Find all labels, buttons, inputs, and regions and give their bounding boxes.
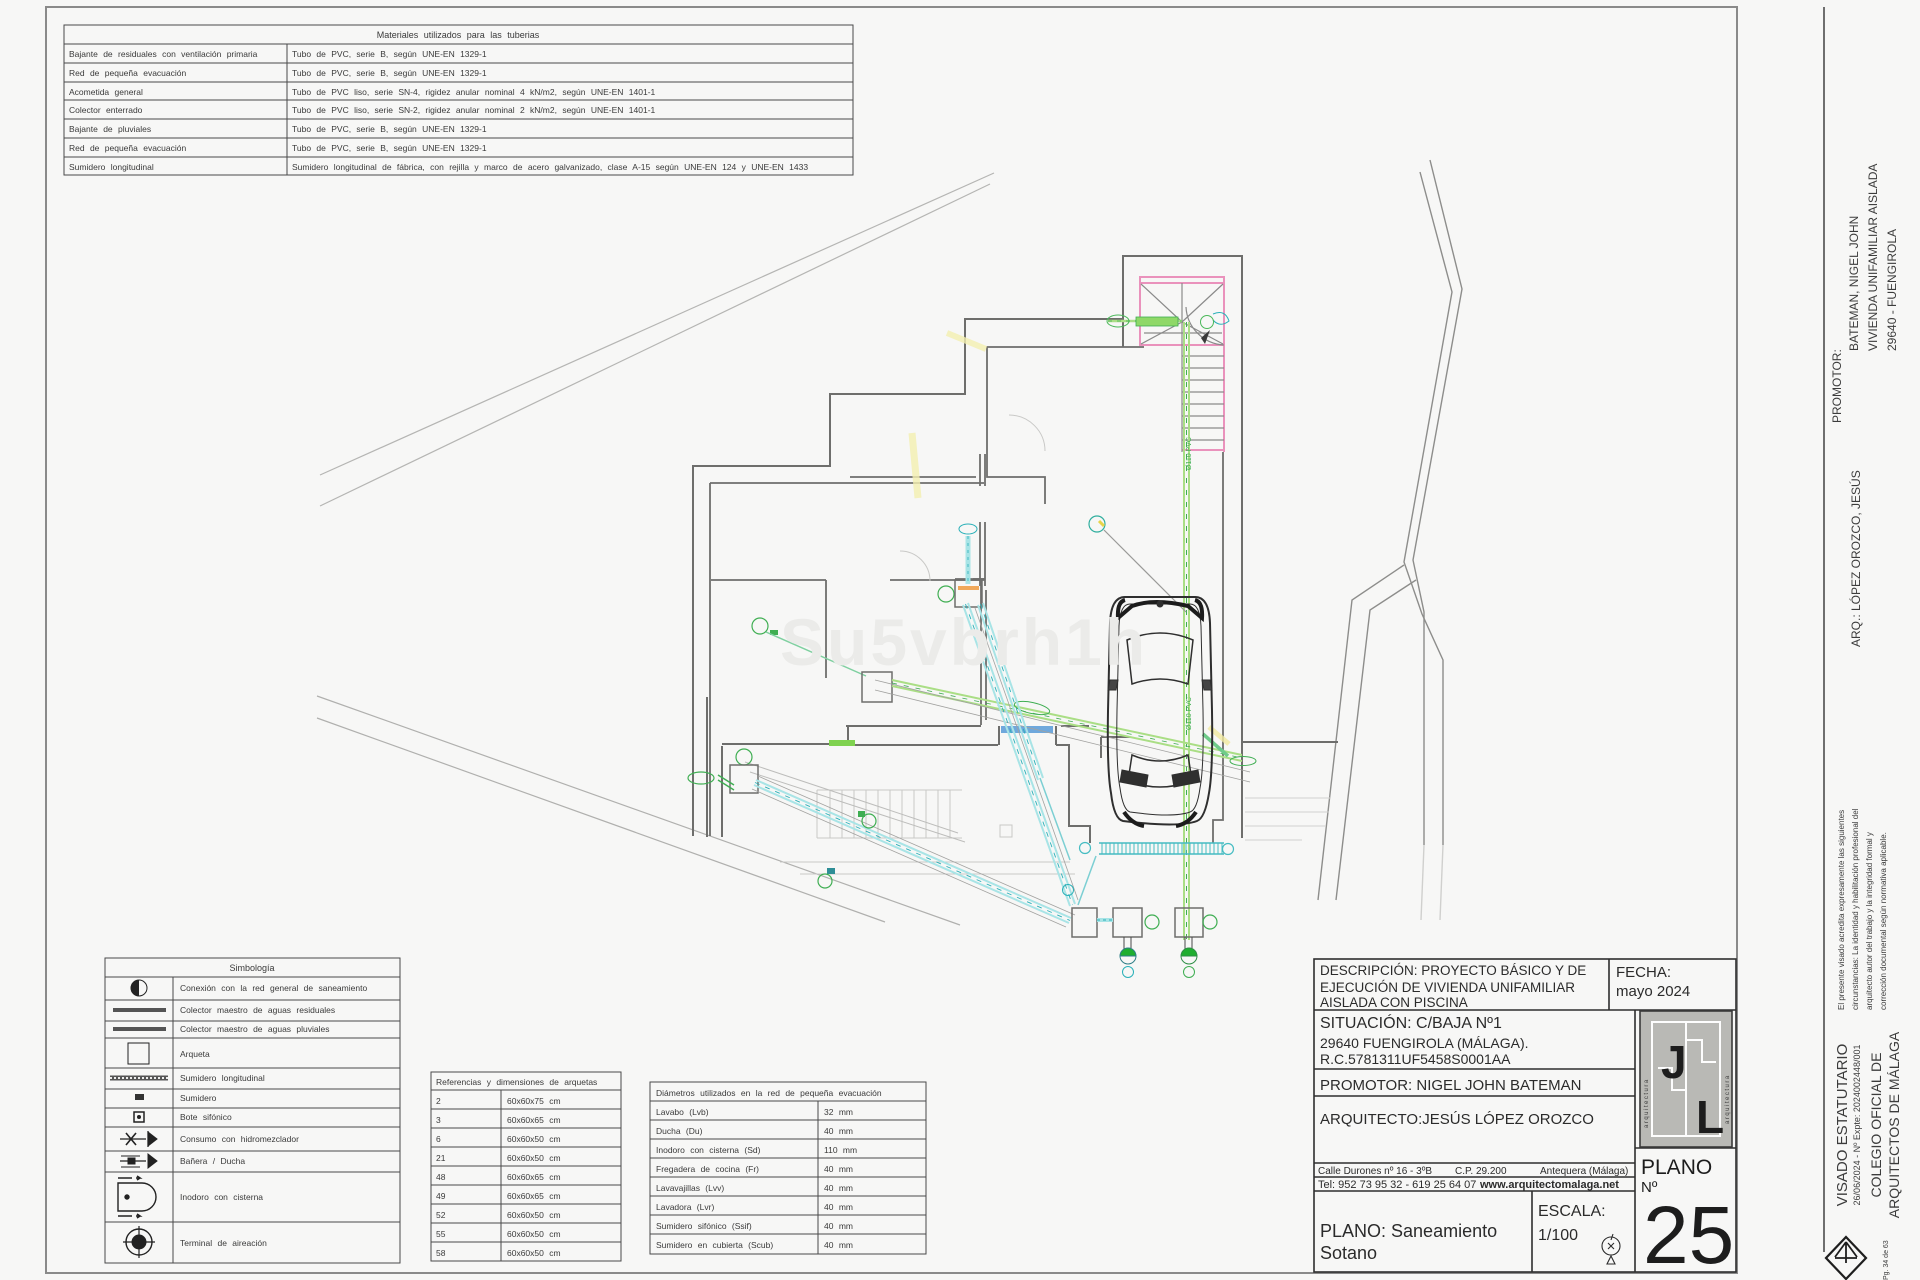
- svg-text:R.C.5781311UF5458S0001AA: R.C.5781311UF5458S0001AA: [1320, 1051, 1511, 1067]
- svg-text:Colector maestro de aguas pluv: Colector maestro de aguas pluviales: [180, 1024, 330, 1034]
- svg-text:40 mm: 40 mm: [824, 1240, 853, 1250]
- svg-text:Diámetros utilizados en la red: Diámetros utilizados en la red de pequeñ…: [656, 1088, 882, 1098]
- svg-text:PROMOTOR:: PROMOTOR:: [1830, 349, 1844, 423]
- svg-text:El presente visado acredita ex: El presente visado acredita expresamente…: [1837, 810, 1846, 1010]
- svg-text:Ø110 PVC: Ø110 PVC: [1186, 697, 1193, 730]
- svg-text:55: 55: [436, 1229, 446, 1239]
- svg-text:Sotano: Sotano: [1320, 1243, 1377, 1263]
- svg-text:ESCALA:: ESCALA:: [1538, 1203, 1606, 1220]
- svg-text:Sumidero longitudinal: Sumidero longitudinal: [69, 162, 154, 172]
- svg-text:VIVIENDA UNIFAMILIAR AISLADA: VIVIENDA UNIFAMILIAR AISLADA: [1866, 164, 1880, 351]
- svg-text:Su5vbrh1h: Su5vbrh1h: [780, 605, 1148, 679]
- svg-text:Tubo de PVC, serie B, según UN: Tubo de PVC, serie B, según UNE-EN 1329-…: [292, 68, 487, 78]
- svg-text:Tubo de PVC, serie B, según UN: Tubo de PVC, serie B, según UNE-EN 1329-…: [292, 49, 487, 59]
- svg-text:Inodoro con cisterna: Inodoro con cisterna: [180, 1192, 263, 1202]
- svg-text:58: 58: [436, 1248, 446, 1258]
- svg-text:Bote sifónico: Bote sifónico: [180, 1112, 232, 1122]
- svg-text:circunstancias: La identidad y: circunstancias: La identidad y habilitac…: [1851, 808, 1860, 1010]
- svg-text:FECHA:: FECHA:: [1616, 964, 1671, 981]
- svg-text:Lavadora (Lvr): Lavadora (Lvr): [656, 1202, 714, 1212]
- svg-text:www.arquitectomalaga.net: www.arquitectomalaga.net: [1479, 1179, 1619, 1191]
- svg-text:110 mm: 110 mm: [824, 1145, 857, 1155]
- svg-text:60x60x50 cm: 60x60x50 cm: [507, 1210, 561, 1220]
- svg-text:40 mm: 40 mm: [824, 1221, 853, 1231]
- svg-text:arquitecto autor del trabajo y: arquitecto autor del trabajo y la integr…: [1865, 832, 1874, 1010]
- svg-text:Lavavajillas (Lvv): Lavavajillas (Lvv): [656, 1183, 724, 1193]
- svg-text:60x60x65 cm: 60x60x65 cm: [507, 1172, 561, 1182]
- svg-text:Acometida general: Acometida general: [69, 87, 143, 97]
- svg-text:60x60x65 cm: 60x60x65 cm: [507, 1191, 561, 1201]
- svg-text:Ducha (Du): Ducha (Du): [656, 1126, 703, 1136]
- svg-text:J: J: [1661, 1036, 1687, 1088]
- svg-text:Fregadera de cocina (Fr): Fregadera de cocina (Fr): [656, 1164, 759, 1174]
- svg-text:2: 2: [436, 1096, 441, 1106]
- svg-text:Tubo de PVC liso, serie SN-2,: Tubo de PVC liso, serie SN-2, rigidez an…: [292, 105, 656, 115]
- svg-text:6: 6: [436, 1134, 441, 1144]
- svg-text:Colector maestro de aguas resi: Colector maestro de aguas residuales: [180, 1005, 335, 1015]
- svg-text:Sumidero sifónico (Ssif): Sumidero sifónico (Ssif): [656, 1221, 752, 1231]
- svg-text:60x60x50 cm: 60x60x50 cm: [507, 1153, 561, 1163]
- svg-text:60x60x65 cm: 60x60x65 cm: [507, 1115, 561, 1125]
- svg-text:Lavabo (Lvb): Lavabo (Lvb): [656, 1107, 709, 1117]
- svg-text:60x60x50 cm: 60x60x50 cm: [507, 1248, 561, 1258]
- svg-text:Simbología: Simbología: [229, 963, 274, 973]
- svg-text:Tubo de PVC liso, serie SN-4,: Tubo de PVC liso, serie SN-4, rigidez an…: [292, 87, 656, 97]
- svg-text:ARQ.: LÓPEZ OROZCO, JESÚS: ARQ.: LÓPEZ OROZCO, JESÚS: [1848, 470, 1863, 647]
- svg-text:Materiales utilizados para las: Materiales utilizados para las tuberias: [377, 30, 540, 40]
- svg-text:Sumidero longitudinal: Sumidero longitudinal: [180, 1073, 265, 1083]
- svg-text:Tel: 952 73 95 32 - 619 25 64: Tel: 952 73 95 32 - 619 25 64 07: [1318, 1179, 1476, 1191]
- svg-text:mayo 2024: mayo 2024: [1616, 983, 1690, 1000]
- svg-text:Sumidero longitudinal de fábri: Sumidero longitudinal de fábrica, con re…: [292, 162, 808, 172]
- svg-text:Tubo de PVC, serie B, según UN: Tubo de PVC, serie B, según UNE-EN 1329-…: [292, 124, 487, 134]
- svg-text:Pg. 34 de 63: Pg. 34 de 63: [1883, 1240, 1890, 1280]
- svg-text:29640 FUENGIROLA (MÁLAGA).: 29640 FUENGIROLA (MÁLAGA).: [1320, 1035, 1529, 1051]
- svg-text:Bañera / Ducha: Bañera / Ducha: [180, 1156, 245, 1166]
- svg-text:3: 3: [436, 1115, 441, 1125]
- svg-text:Ø110 PVC: Ø110 PVC: [1186, 437, 1193, 470]
- svg-text:ARQUITECTO:JESÚS LÓPEZ OROZCO: ARQUITECTO:JESÚS LÓPEZ OROZCO: [1320, 1111, 1594, 1128]
- svg-text:PLANO: Saneamiento: PLANO: Saneamiento: [1320, 1221, 1497, 1241]
- svg-text:40 mm: 40 mm: [824, 1183, 853, 1193]
- svg-text:49: 49: [436, 1191, 446, 1201]
- svg-text:60x60x50 cm: 60x60x50 cm: [507, 1229, 561, 1239]
- svg-text:Bajante de pluviales: Bajante de pluviales: [69, 124, 151, 134]
- svg-text:COLEGIO OFICIAL DE: COLEGIO OFICIAL DE: [1868, 1053, 1884, 1198]
- svg-text:40 mm: 40 mm: [824, 1202, 853, 1212]
- svg-text:Red de pequeña evacuación: Red de pequeña evacuación: [69, 68, 186, 78]
- svg-text:DESCRIPCIÓN: PROYECTO BÁSICO Y: DESCRIPCIÓN: PROYECTO BÁSICO Y DE: [1320, 963, 1586, 978]
- svg-text:Tubo de PVC, serie B, según UN: Tubo de PVC, serie B, según UNE-EN 1329-…: [292, 143, 487, 153]
- svg-text:48: 48: [436, 1172, 446, 1182]
- svg-text:AISLADA CON PISCINA: AISLADA CON PISCINA: [1320, 995, 1468, 1010]
- svg-text:Antequera (Málaga): Antequera (Málaga): [1540, 1166, 1628, 1177]
- svg-text:Sumidero: Sumidero: [180, 1093, 217, 1103]
- svg-text:VISADO ESTATUTARIO: VISADO ESTATUTARIO: [1834, 1044, 1851, 1207]
- svg-text:40 mm: 40 mm: [824, 1164, 853, 1174]
- svg-text:C.P. 29.200: C.P. 29.200: [1455, 1166, 1507, 1177]
- svg-text:PLANO: PLANO: [1641, 1156, 1712, 1179]
- svg-text:Consumo con hidromezclador: Consumo con hidromezclador: [180, 1134, 299, 1144]
- svg-text:25: 25: [1643, 1190, 1734, 1280]
- svg-text:1/100: 1/100: [1538, 1227, 1578, 1244]
- svg-text:Conexión con la red general de: Conexión con la red general de saneamien…: [180, 983, 367, 993]
- svg-text:32 mm: 32 mm: [824, 1107, 853, 1117]
- svg-text:Bajante de residuales con vent: Bajante de residuales con ventilación pr…: [69, 49, 258, 59]
- svg-text:L: L: [1696, 1091, 1724, 1143]
- svg-text:21: 21: [436, 1153, 446, 1163]
- svg-text:52: 52: [436, 1210, 446, 1220]
- svg-text:60x60x75 cm: 60x60x75 cm: [507, 1096, 561, 1106]
- svg-text:PROMOTOR: NIGEL JOHN BATEMAN: PROMOTOR: NIGEL JOHN BATEMAN: [1320, 1077, 1581, 1094]
- svg-text:Arqueta: Arqueta: [180, 1049, 210, 1059]
- svg-text:Terminal de aireación: Terminal de aireación: [180, 1238, 267, 1248]
- svg-text:ARQUITECTOS DE MÁLAGA: ARQUITECTOS DE MÁLAGA: [1886, 1031, 1902, 1218]
- svg-text:Colector enterrado: Colector enterrado: [69, 105, 143, 115]
- svg-text:Sumidero en cubierta (Scub): Sumidero en cubierta (Scub): [656, 1240, 773, 1250]
- svg-text:40 mm: 40 mm: [824, 1126, 853, 1136]
- svg-text:BATEMAN, NIGEL JOHN: BATEMAN, NIGEL JOHN: [1847, 216, 1861, 351]
- svg-text:SITUACIÓN: C/BAJA Nº1: SITUACIÓN: C/BAJA Nº1: [1320, 1013, 1502, 1032]
- svg-text:Referencias y dimensiones de a: Referencias y dimensiones de arquetas: [436, 1077, 597, 1087]
- svg-text:arquitectura: arquitectura: [1725, 1074, 1731, 1124]
- svg-text:Calle Durones nº 16 - 3ºB: Calle Durones nº 16 - 3ºB: [1318, 1166, 1432, 1177]
- svg-text:EJECUCIÓN DE VIVIENDA UNIFAMIL: EJECUCIÓN DE VIVIENDA UNIFAMILIAR: [1320, 980, 1575, 995]
- svg-text:arquitectura: arquitectura: [1644, 1078, 1650, 1128]
- svg-text:Inodoro con cisterna (Sd): Inodoro con cisterna (Sd): [656, 1145, 761, 1155]
- svg-text:29640 - FUENGIROLA: 29640 - FUENGIROLA: [1885, 229, 1899, 351]
- svg-text:26/06/2024 - Nº Expte: 2024002: 26/06/2024 - Nº Expte: 2024002448/001: [1852, 1045, 1862, 1206]
- svg-text:Red de pequeña evacuación: Red de pequeña evacuación: [69, 143, 186, 153]
- svg-text:60x60x50 cm: 60x60x50 cm: [507, 1134, 561, 1144]
- svg-text:corrección documental según no: corrección documental según normativa ap…: [1879, 832, 1888, 1010]
